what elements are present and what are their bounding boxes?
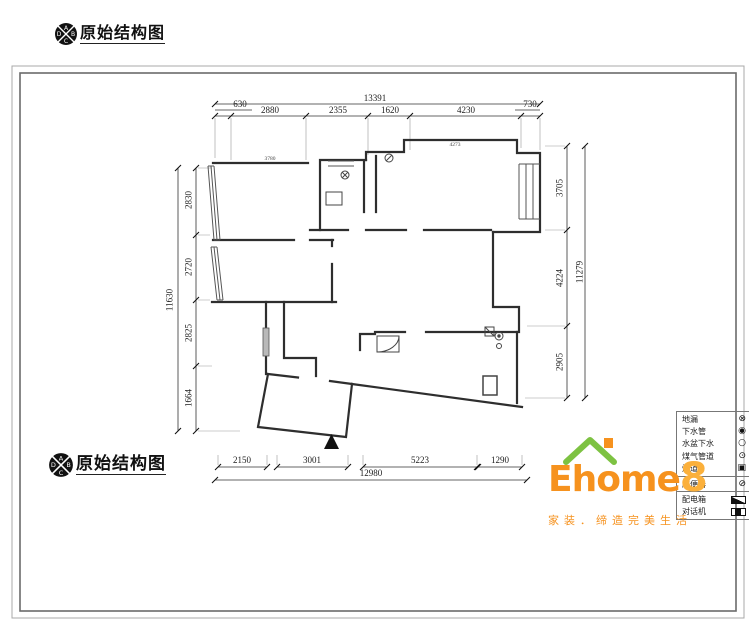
dim-bottom-seg-1: 2150	[233, 456, 251, 465]
svg-text:D: D	[57, 31, 62, 38]
brand-suffix: 8	[680, 455, 707, 501]
title-block-top: A D B C 原始结构图	[54, 22, 165, 46]
legend-row: 地漏 ⊗	[677, 413, 749, 425]
svg-text:D: D	[51, 461, 56, 469]
wall-dim-label: 3780	[265, 157, 276, 163]
compass-icon: A D B C	[54, 22, 78, 46]
extension-lines	[198, 118, 565, 465]
dim-top-seg-5: 4230	[457, 106, 475, 115]
dimension-lines	[178, 104, 585, 480]
dim-left-seg-1: 2830	[185, 191, 194, 209]
wall-dim-label: 4273	[450, 143, 461, 149]
outer-frame	[12, 66, 744, 618]
dim-top-seg-6: 730	[523, 100, 537, 109]
drawing-title: 原始结构图	[80, 24, 165, 43]
dim-left-seg-3: 2825	[185, 324, 194, 342]
dim-top-seg-4: 1620	[381, 106, 399, 115]
house-roof-icon	[562, 432, 622, 466]
brand-block: Ehome8 家装．缔造完美生活	[548, 458, 748, 528]
dim-top-total: 13391	[364, 94, 387, 103]
dim-left-seg-2: 2720	[185, 258, 194, 276]
dim-bottom-seg-3: 5223	[411, 456, 429, 465]
dim-right-seg-1: 3705	[556, 179, 565, 197]
blueprint-page: 13391 630 2880 2355 1620 4230 730 11630 …	[0, 0, 756, 630]
dim-right-seg-3: 2905	[556, 353, 565, 371]
fixtures	[326, 154, 503, 395]
svg-text:B: B	[66, 461, 70, 469]
svg-text:C: C	[59, 469, 64, 477]
legend-label: 地漏	[682, 414, 698, 425]
legend-row: 下水管 ◉	[677, 425, 749, 437]
dim-bottom-total: 12980	[360, 469, 383, 478]
dim-left-total: 11630	[166, 289, 175, 311]
basin-drain-icon: ○	[738, 439, 746, 448]
legend-label: 水盆下水	[682, 438, 714, 449]
dim-top-seg-3: 2355	[329, 106, 347, 115]
inner-frame	[20, 73, 736, 611]
svg-text:C: C	[64, 38, 68, 45]
drain-pipe-icon: ◉	[738, 427, 746, 436]
svg-text:B: B	[71, 31, 75, 38]
dim-bottom-seg-2: 3001	[303, 456, 321, 465]
dim-top-seg-2: 2880	[261, 106, 279, 115]
svg-text:A: A	[59, 455, 64, 463]
walls	[212, 140, 540, 437]
dimension-ticks	[175, 101, 588, 483]
corridor-window	[263, 328, 269, 356]
dim-right-total: 11279	[576, 261, 585, 283]
compass-icon: A D B C	[48, 452, 74, 478]
dim-top-seg-1: 630	[233, 100, 247, 109]
floor-drain-icon: ⊗	[738, 415, 746, 424]
dim-left-seg-4: 1664	[185, 389, 194, 407]
dim-bottom-seg-4: 1290	[491, 456, 509, 465]
drawing-title: 原始结构图	[76, 455, 166, 476]
brand-tagline: 家装．缔造完美生活	[548, 512, 748, 528]
title-block-bottom: A D B C 原始结构图	[48, 452, 166, 478]
dim-right-seg-2: 4224	[556, 269, 565, 287]
legend-row: 水盆下水 ○	[677, 438, 749, 450]
legend-label: 下水管	[682, 426, 706, 437]
